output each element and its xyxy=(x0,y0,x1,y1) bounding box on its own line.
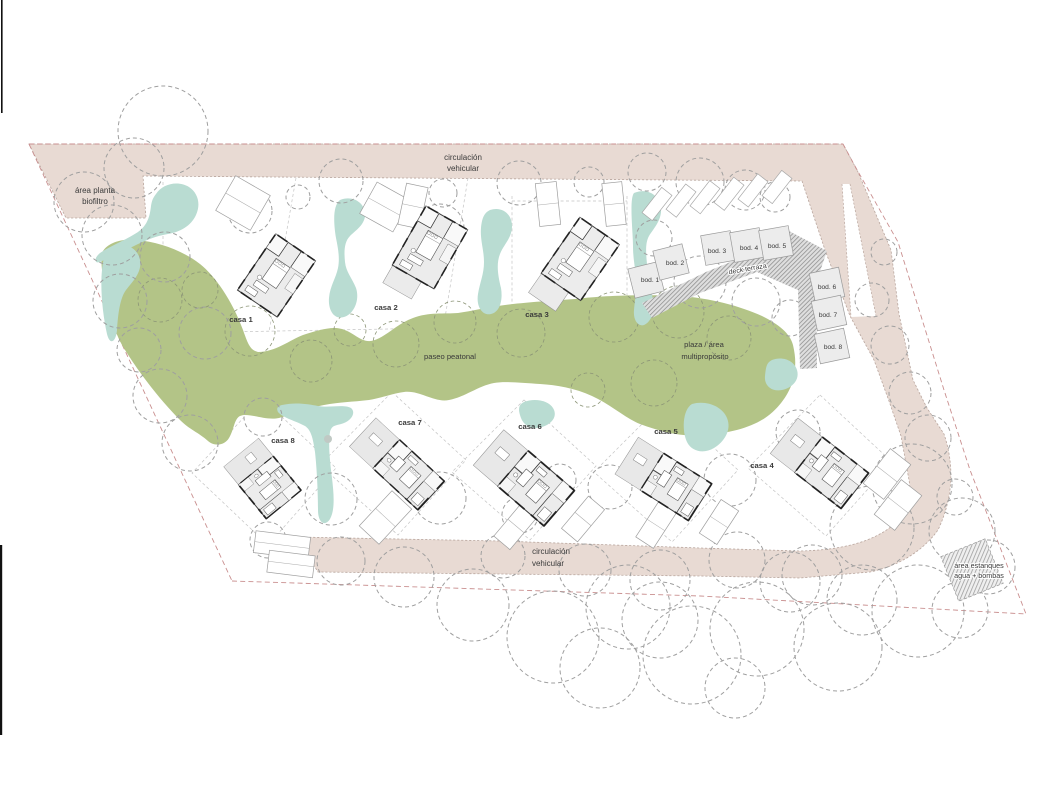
svg-text:vehicular: vehicular xyxy=(447,164,479,173)
svg-text:bod. 3: bod. 3 xyxy=(708,248,727,255)
svg-text:casa 8: casa 8 xyxy=(271,436,295,445)
svg-text:bod. 8: bod. 8 xyxy=(824,344,843,351)
svg-text:plaza / área: plaza / área xyxy=(684,340,724,349)
svg-text:bod. 7: bod. 7 xyxy=(819,312,838,319)
svg-text:casa 7: casa 7 xyxy=(398,418,422,427)
svg-text:casa 6: casa 6 xyxy=(518,422,542,431)
svg-text:bod. 6: bod. 6 xyxy=(818,284,837,291)
svg-text:circulación: circulación xyxy=(444,153,482,162)
svg-text:casa 1: casa 1 xyxy=(229,315,253,324)
svg-text:paseo peatonal: paseo peatonal xyxy=(424,352,476,361)
svg-text:casa 2: casa 2 xyxy=(374,303,398,312)
svg-text:área planta: área planta xyxy=(75,186,116,195)
svg-text:agua + bombas: agua + bombas xyxy=(954,571,1004,580)
svg-text:vehicular: vehicular xyxy=(532,559,564,568)
svg-text:bod. 4: bod. 4 xyxy=(740,245,759,252)
svg-text:bod. 2: bod. 2 xyxy=(666,260,685,267)
svg-text:casa 3: casa 3 xyxy=(525,310,549,319)
svg-text:multipropósito: multipropósito xyxy=(681,352,728,361)
svg-text:casa 4: casa 4 xyxy=(750,461,774,470)
svg-text:bod. 1: bod. 1 xyxy=(641,277,660,284)
svg-text:bod. 5: bod. 5 xyxy=(768,243,787,250)
svg-text:casa 5: casa 5 xyxy=(654,427,678,436)
svg-text:área estanques: área estanques xyxy=(954,561,1004,570)
svg-text:biofiltro: biofiltro xyxy=(82,197,108,206)
svg-text:circulación: circulación xyxy=(532,547,570,556)
